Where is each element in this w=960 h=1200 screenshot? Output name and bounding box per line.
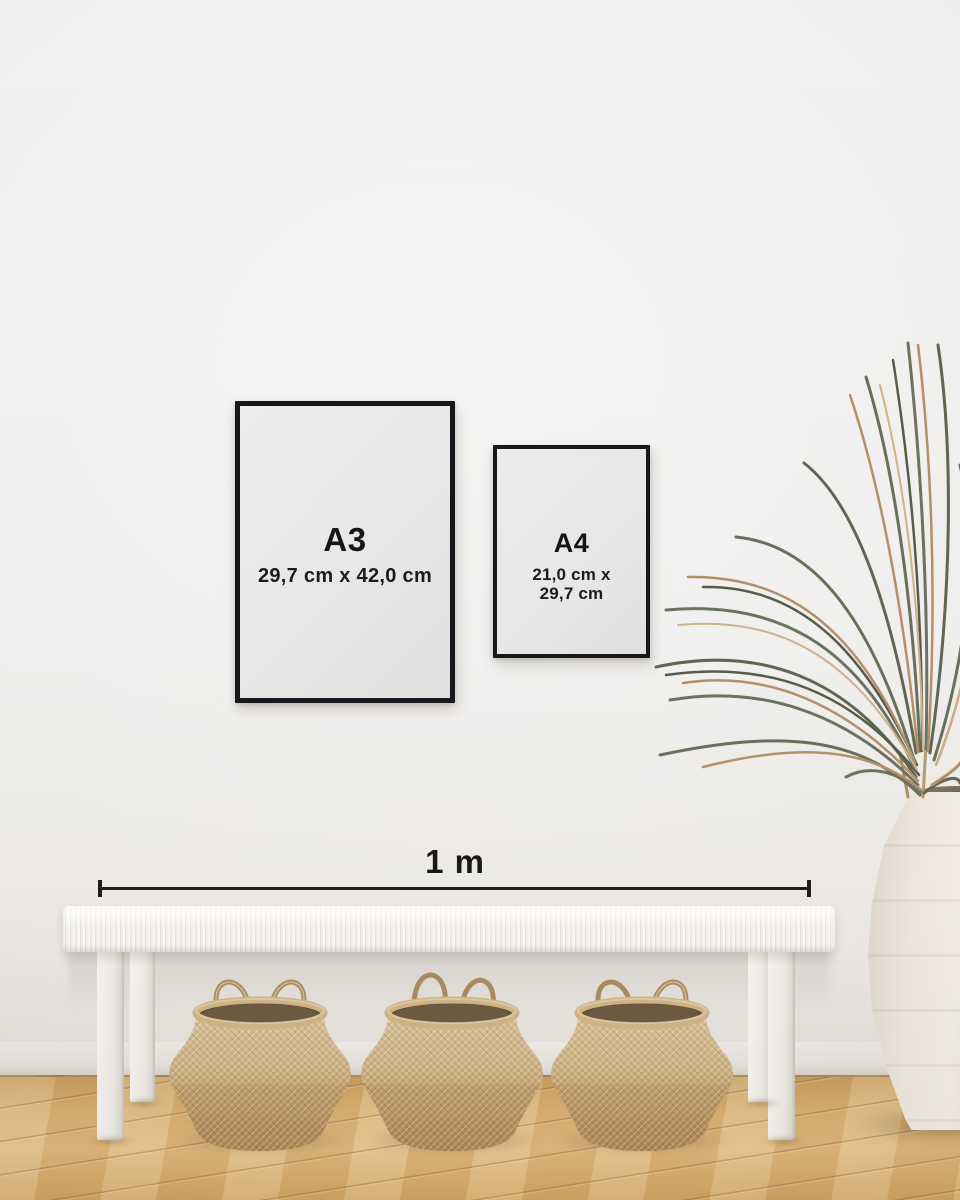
poster-a3: A3 29,7 cm x 42,0 cm xyxy=(240,406,450,698)
a4-size-label: A4 xyxy=(554,530,590,557)
bench-leg xyxy=(130,948,155,1102)
leg-shadow xyxy=(88,1136,136,1146)
seagrass-basket xyxy=(352,960,552,1152)
seagrass-basket xyxy=(542,960,742,1152)
frame-a3: A3 29,7 cm x 42,0 cm xyxy=(235,401,455,703)
bench-seat xyxy=(63,906,835,952)
scale-bar-label: 1 m xyxy=(100,843,810,881)
scale-bar-line xyxy=(100,887,810,890)
a3-dimensions: 29,7 cm x 42,0 cm xyxy=(258,565,432,588)
scale-bar-right-tick xyxy=(807,880,811,897)
leg-shadow xyxy=(760,1136,808,1146)
a4-dimensions-line1: 21,0 cm x xyxy=(532,565,610,584)
leg-shadow xyxy=(124,1098,164,1108)
poster-size-guide-scene: A3 29,7 cm x 42,0 cm A4 21,0 cm x 29,7 c… xyxy=(0,0,960,1200)
bench-leg xyxy=(768,948,795,1140)
seagrass-basket xyxy=(160,960,360,1152)
a4-dimensions: 21,0 cm x 29,7 cm xyxy=(532,565,610,603)
leg-shadow xyxy=(742,1098,782,1108)
scale-bar-left-tick xyxy=(98,880,102,897)
bench-leg xyxy=(97,948,124,1140)
a3-size-label: A3 xyxy=(323,523,366,556)
dried-palm-plant xyxy=(608,315,960,815)
a4-dimensions-line2: 29,7 cm xyxy=(532,584,610,603)
